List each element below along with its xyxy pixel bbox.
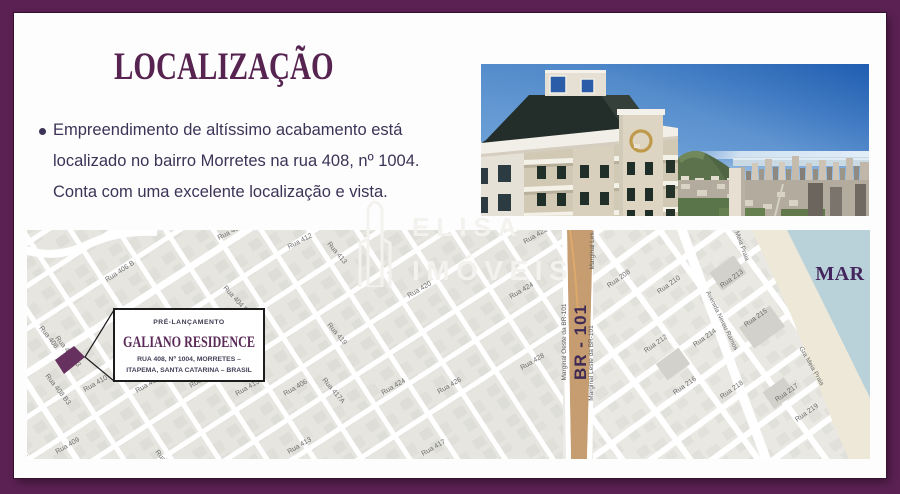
svg-text:Marginal Oeste da BR-101: Marginal Oeste da BR-101 [561, 303, 568, 380]
svg-text:RUA 408, Nº 1004, MORRETES –: RUA 408, Nº 1004, MORRETES – [137, 356, 241, 363]
svg-text:PRÉ-LANÇAMENTO: PRÉ-LANÇAMENTO [153, 317, 224, 326]
svg-text:›: › [27, 450, 28, 459]
svg-text:Marginal Leste da BR-101: Marginal Leste da BR-101 [588, 325, 595, 401]
svg-text:GALIANO RESIDENCE: GALIANO RESIDENCE [123, 334, 255, 351]
svg-text:MAR: MAR [815, 263, 864, 285]
svg-text:ITAPEMA, SANTA CATARINA – BRAS: ITAPEMA, SANTA CATARINA – BRASIL [126, 367, 252, 374]
svg-text:Marginal Les.: Marginal Les. [589, 230, 596, 269]
